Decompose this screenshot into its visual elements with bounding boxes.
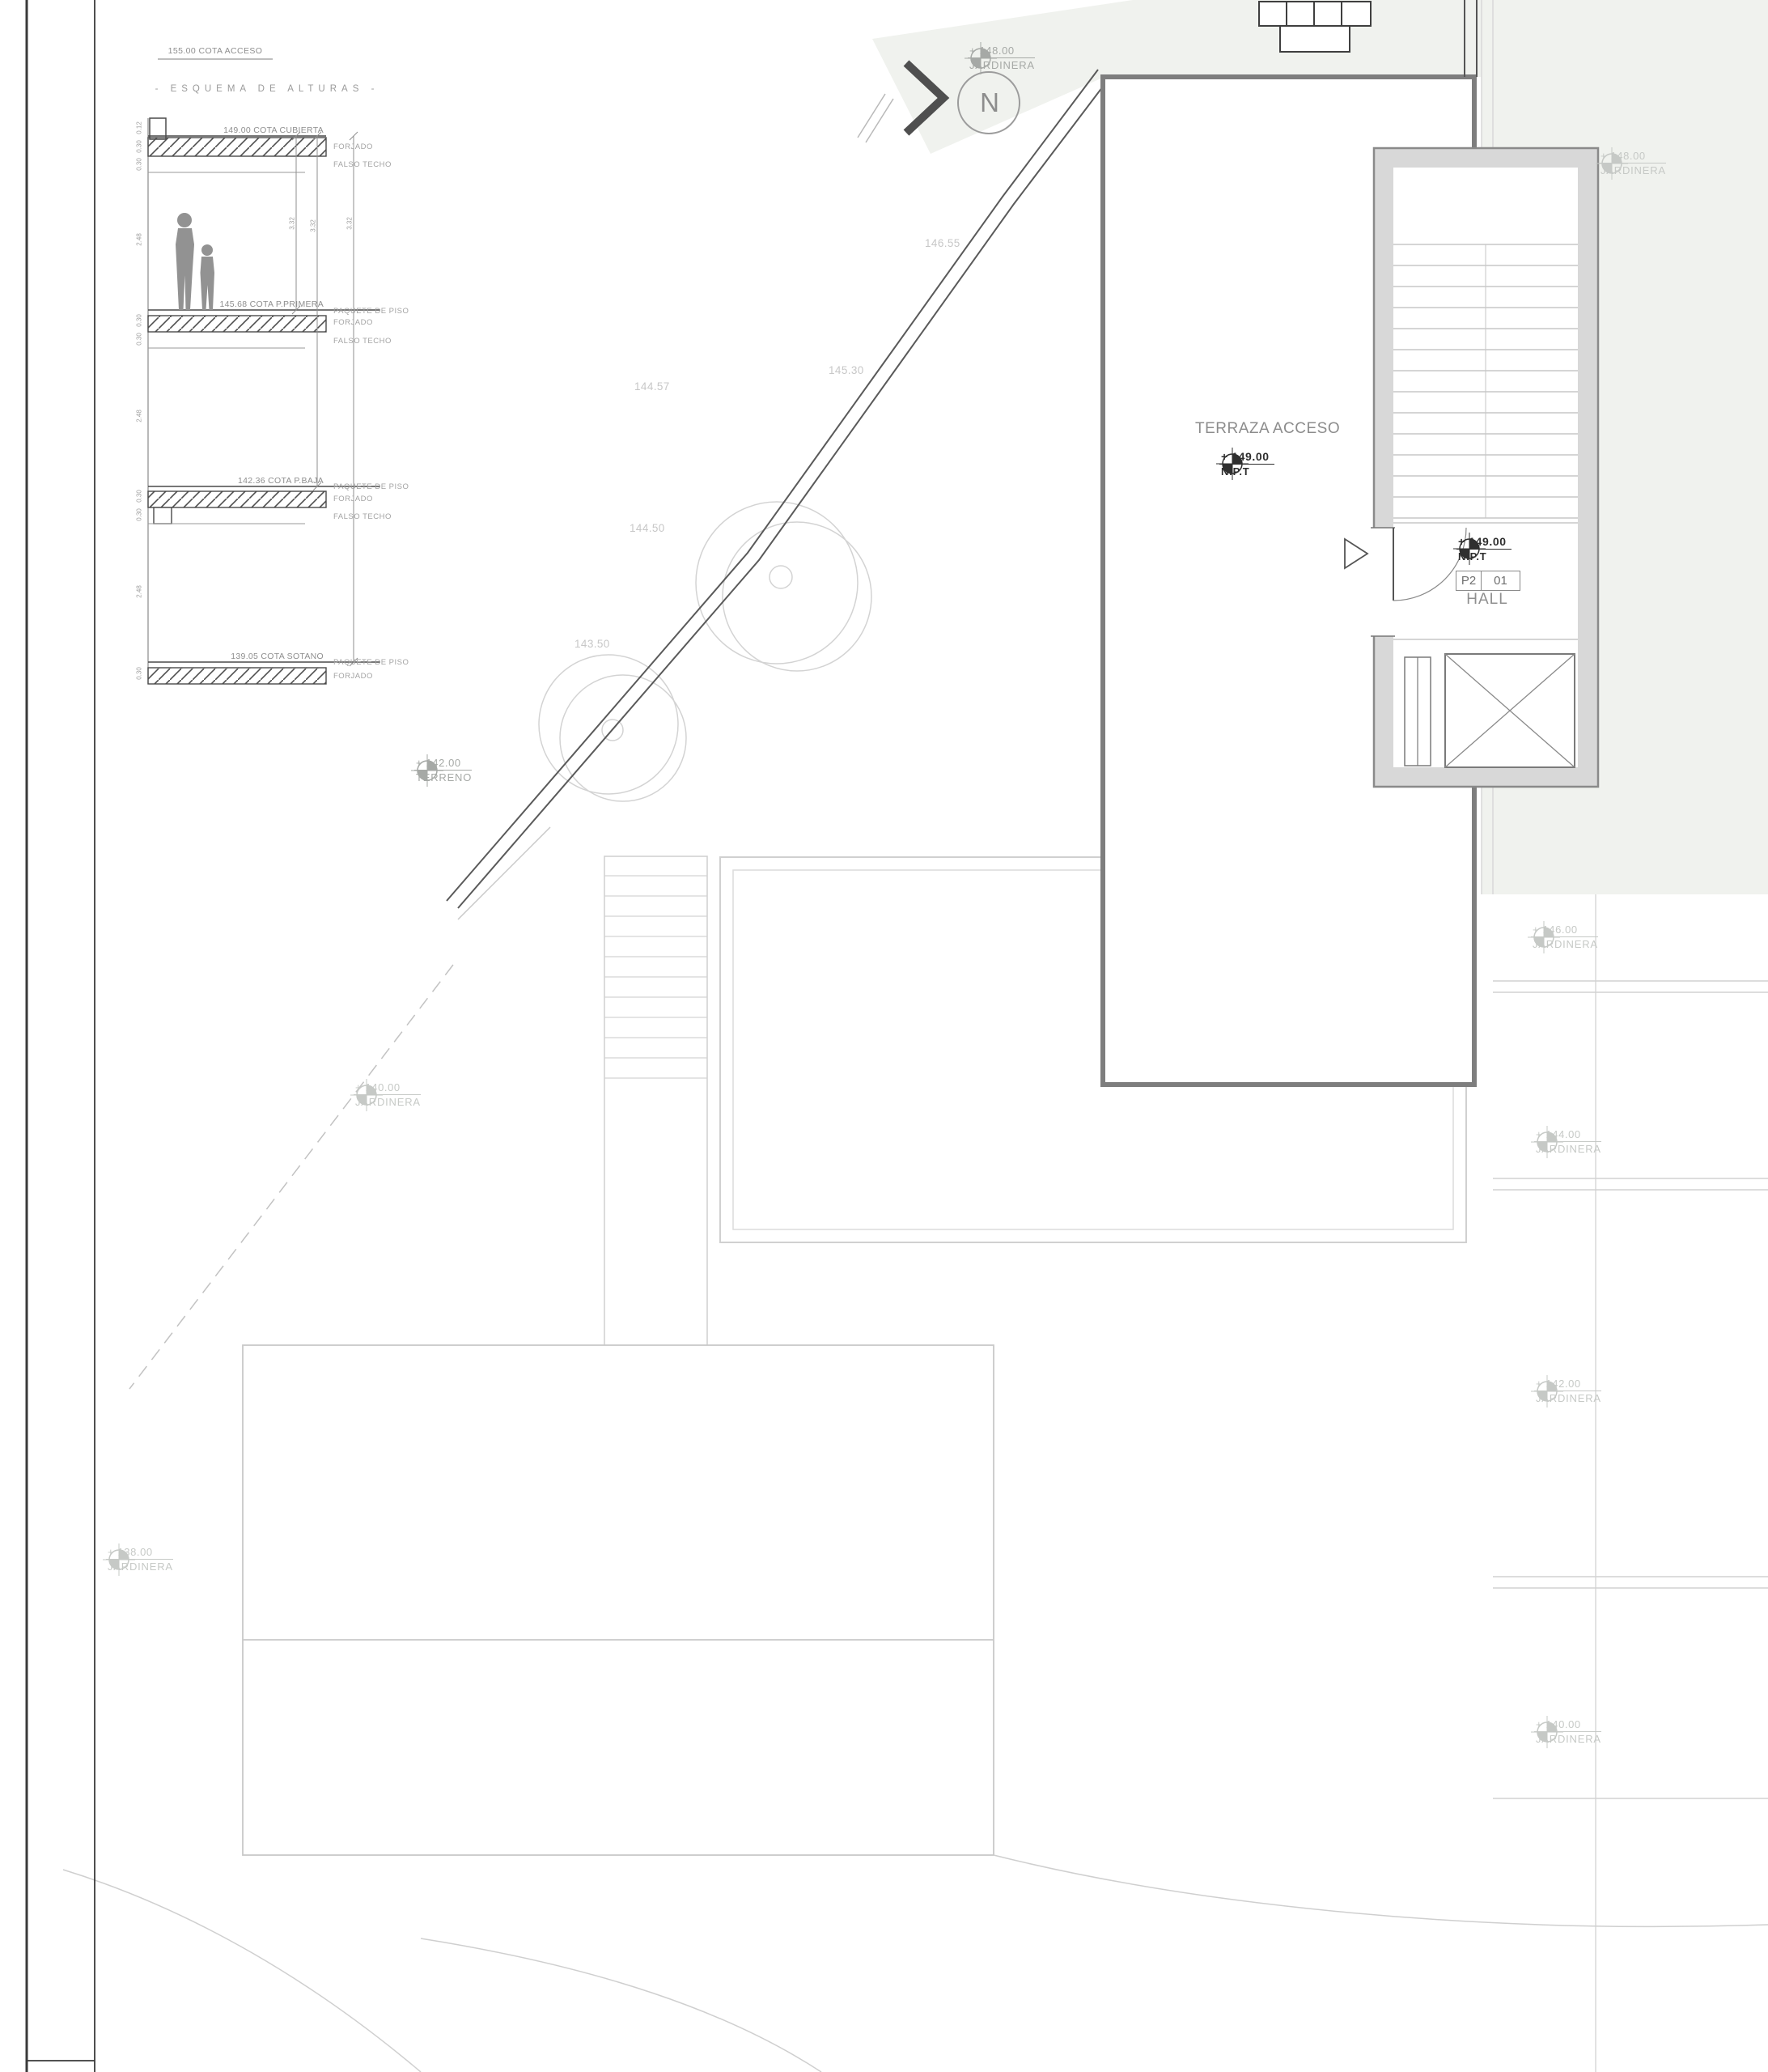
- north-letter: N: [974, 87, 1005, 118]
- forjado-label: FORJADO: [333, 495, 373, 503]
- level-marker-npt-terraza: + 149.00N.P.T: [1216, 448, 1274, 478]
- hall-door-opening: [1369, 528, 1397, 636]
- dim-label: 0.30: [136, 667, 143, 680]
- level-marker-jardinera: + 146.00JARDINERA: [1528, 921, 1598, 950]
- exterior-steps: [604, 856, 707, 1346]
- hall-room-tag: P2 01: [1456, 571, 1520, 591]
- schema-dimension-lines: [292, 132, 358, 666]
- schema-title: - ESQUEMA DE ALTURAS -: [136, 84, 398, 94]
- benchmark-icon: [411, 754, 443, 787]
- contour-label: 144.57: [634, 380, 670, 393]
- room-tag-number: 01: [1482, 571, 1520, 590]
- forjado-label: FORJADO: [333, 142, 373, 151]
- dim-label: 0.30: [136, 333, 143, 346]
- falso-techo-label: FALSO TECHO: [333, 337, 392, 346]
- forjado-label: FORJADO: [333, 672, 373, 681]
- level-marker-jardinera: + 142.00JARDINERA: [1531, 1375, 1601, 1404]
- terraza-acceso-label: TERRAZA ACCESO: [1195, 420, 1333, 438]
- cota-primera-label: 145.68 COTA P.PRIMERA: [184, 299, 324, 309]
- benchmark-icon: [1216, 448, 1249, 480]
- hall-label: HALL: [1455, 591, 1520, 609]
- dim-label: 0.30: [136, 508, 143, 521]
- level-marker-terreno: + 142.00TERRENO: [411, 754, 472, 783]
- benchmark-icon: [1528, 921, 1560, 953]
- access-ramp: [447, 70, 1110, 908]
- benchmark-icon: [1531, 1375, 1563, 1408]
- stair-core: [1345, 148, 1598, 787]
- contour-label: 146.55: [925, 237, 960, 249]
- dim-label: 2.48: [136, 410, 143, 422]
- benchmark-icon: [965, 42, 997, 74]
- dim-label: 3.32: [289, 217, 296, 230]
- dim-label: 3.32: [346, 217, 354, 230]
- falso-techo-label: FALSO TECHO: [333, 512, 392, 521]
- sheet-frame: [27, 0, 95, 2072]
- architectural-plan-sheet: 155.00 COTA ACCESO - ESQUEMA DE ALTURAS …: [0, 0, 1768, 2072]
- level-marker-jardinera: + 144.00JARDINERA: [1531, 1126, 1601, 1155]
- paquete-piso-label: PAQUETE DE PISO: [333, 658, 409, 667]
- dim-label: 0.12: [136, 121, 143, 134]
- dim-label: 0.30: [136, 140, 143, 153]
- level-marker-jardinera: + 140.00JARDINERA: [350, 1079, 421, 1108]
- plan-linework: [0, 0, 1768, 2072]
- dim-label: 0.30: [136, 490, 143, 503]
- dim-label: 3.32: [310, 219, 317, 232]
- terrain-contour-curves: [63, 1855, 1768, 2072]
- dim-label: 2.48: [136, 233, 143, 246]
- elevator-shaft: [1405, 654, 1575, 767]
- cota-acceso-label: 155.00 COTA ACCESO: [158, 46, 273, 56]
- dim-label: 2.48: [136, 585, 143, 598]
- level-marker-jardinera: + 138.00JARDINERA: [103, 1543, 173, 1573]
- benchmark-icon: [1596, 147, 1628, 180]
- contour-label: 143.50: [574, 638, 610, 650]
- forjado-label: FORJADO: [333, 318, 373, 327]
- benchmark-icon: [350, 1079, 383, 1111]
- paquete-piso-label: PAQUETE DE PISO: [333, 482, 409, 491]
- benchmark-icon: [103, 1543, 135, 1576]
- cota-sotano-label: 139.05 COTA SOTANO: [184, 652, 324, 661]
- room-tag-plant: P2: [1456, 571, 1482, 590]
- dim-label: 0.30: [136, 314, 143, 327]
- level-marker-jardinera: + 148.00JARDINERA: [1596, 147, 1666, 176]
- lower-building-outline: [243, 1345, 994, 1855]
- height-schema: [148, 59, 380, 684]
- benchmark-icon: [1531, 1716, 1563, 1748]
- benchmark-icon: [1453, 533, 1486, 565]
- level-marker-jardinera: + 140.00JARDINERA: [1531, 1716, 1601, 1745]
- benchmark-icon: [1531, 1126, 1563, 1158]
- cota-cubierta-label: 149.00 COTA CUBIERTA: [184, 125, 324, 135]
- level-marker-npt-hall: + 149.00N.P.T: [1453, 533, 1511, 563]
- cota-baja-label: 142.36 COTA P.BAJA: [184, 476, 324, 486]
- dim-label: 0.30: [136, 158, 143, 171]
- contour-label: 144.50: [630, 522, 665, 534]
- human-figure-silhouettes: [176, 213, 214, 310]
- falso-techo-label: FALSO TECHO: [333, 160, 392, 169]
- contour-label: 145.30: [829, 364, 864, 376]
- level-marker-jardinera: + 148.00JARDINERA: [965, 42, 1035, 71]
- paquete-piso-label: PAQUETE DE PISO: [333, 307, 409, 316]
